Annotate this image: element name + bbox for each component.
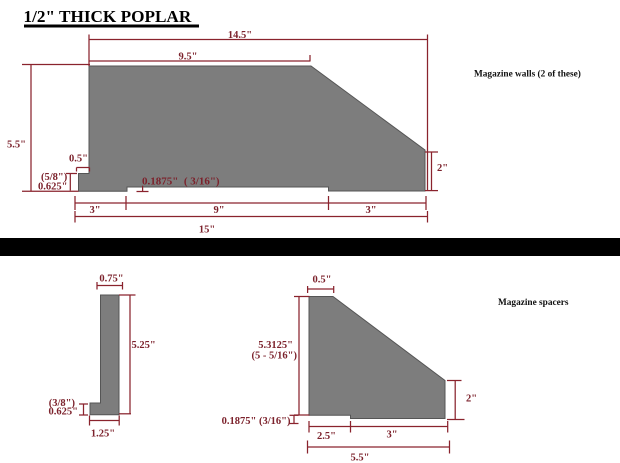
svg-text:5.5": 5.5" xyxy=(7,140,26,151)
svg-text:15": 15" xyxy=(199,225,215,236)
svg-text:0.1875" ( 3/16"): 0.1875" ( 3/16") xyxy=(142,176,220,188)
svg-text:3": 3" xyxy=(386,430,397,441)
svg-text:5.5": 5.5" xyxy=(351,453,370,463)
svg-text:5.3125": 5.3125" xyxy=(258,340,293,351)
svg-text:Magazine spacers: Magazine spacers xyxy=(498,298,569,308)
svg-text:2": 2" xyxy=(466,394,477,405)
svg-text:0.625": 0.625" xyxy=(49,407,78,418)
svg-text:9": 9" xyxy=(213,205,224,216)
svg-text:9.5": 9.5" xyxy=(179,52,198,63)
svg-text:2": 2" xyxy=(437,163,448,174)
svg-text:0.625": 0.625" xyxy=(38,182,67,193)
svg-text:0.5": 0.5" xyxy=(69,154,88,165)
svg-text:2.5": 2.5" xyxy=(317,431,336,442)
svg-text:14.5": 14.5" xyxy=(228,30,252,41)
svg-text:0.75": 0.75" xyxy=(99,274,123,285)
svg-text:Magazine walls (2 of these): Magazine walls (2 of these) xyxy=(474,69,581,80)
svg-text:3": 3" xyxy=(89,205,100,216)
svg-text:(5 - 5/16"): (5 - 5/16") xyxy=(252,351,298,362)
svg-text:5.25": 5.25" xyxy=(132,340,156,351)
svg-text:0.1875" (3/16"): 0.1875" (3/16") xyxy=(222,416,291,427)
svg-text:1/2" THICK POPLAR: 1/2" THICK POPLAR xyxy=(24,7,192,26)
svg-text:0.5": 0.5" xyxy=(313,275,332,286)
svg-text:3": 3" xyxy=(365,205,376,216)
svg-text:1.25": 1.25" xyxy=(91,429,115,440)
